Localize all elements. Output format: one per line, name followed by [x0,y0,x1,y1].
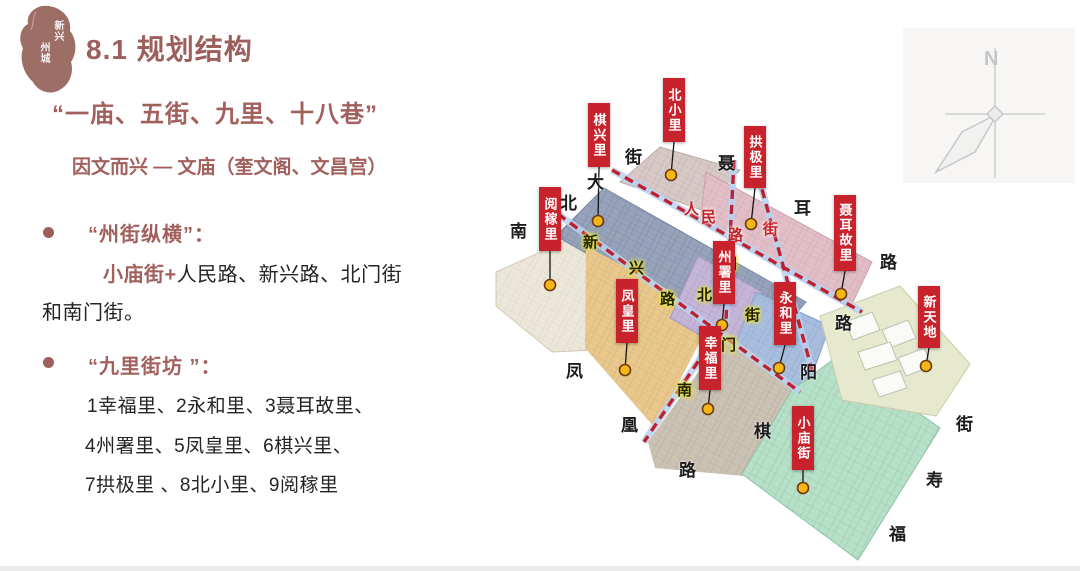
street-name-char: 凰 [621,411,638,436]
road-char: 兴 [629,257,644,278]
road-char: 北 [697,284,712,305]
district-label-fenghuangli: 凤皇里 [616,279,638,343]
street-name-char: 福 [889,520,906,545]
street-name-char: 棋 [754,417,771,442]
district-label-qixingli: 棋兴里 [588,103,610,167]
district-label-xintiandi: 新天地 [918,286,940,348]
slide-canvas: 新兴 州城 8.1 规划结构 “一庙、五街、九里、十八巷” 因文而兴 — 文庙（… [0,0,1080,571]
district-label-gongjili: 拱极里 [744,126,766,188]
district-label-xiaomiaojie: 小庙街 [792,406,814,470]
road-char: 新 [583,231,598,252]
road-char: 街 [745,304,760,325]
road-char: 门 [721,334,736,355]
street-name-char: 南 [510,217,527,242]
street-name-char: 大 [587,168,604,193]
street-name-char: 耳 [794,194,811,219]
district-label-xingfuli: 幸福里 [699,326,721,390]
street-name-char: 北 [560,189,577,214]
street-name-char: 街 [625,143,642,168]
road-char-red: 人 [684,198,699,219]
street-name-char: 路 [880,248,897,273]
street-name-char: 路 [679,456,696,481]
road-char: 南 [677,379,692,400]
street-name-char: 路 [835,309,852,334]
slide-edge [0,566,1080,571]
district-label-zhoushuli: 州署里 [713,241,735,304]
road-char-red: 民 [701,206,716,227]
street-name-char: 寿 [926,466,943,491]
road-char: 路 [660,288,675,309]
street-name-char: 聂 [718,149,735,174]
compass-north-letter: N [984,48,998,71]
district-label-beixiaoli: 北小里 [663,78,685,142]
street-name-char: 凤 [566,357,583,382]
street-name-char: 街 [956,410,973,435]
road-char-red: 街 [763,218,778,239]
district-label-nieergul i: 聂耳故里 [834,195,856,271]
district-label-yuejiali: 阅稼里 [539,187,561,251]
street-name-char: 阳 [800,358,817,383]
district-label-yongheli: 永和里 [774,282,796,345]
